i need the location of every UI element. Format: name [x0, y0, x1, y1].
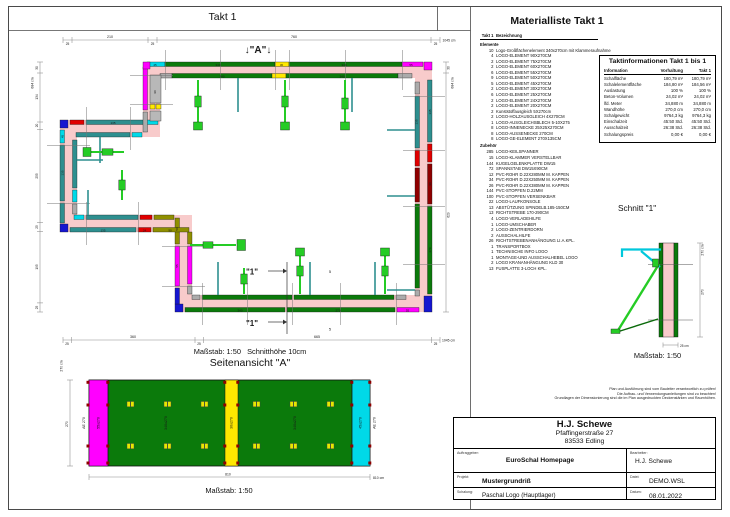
datum-label: Datum:: [630, 490, 642, 494]
dim-label: 25: [434, 342, 438, 346]
svg-text:90: 90: [168, 228, 172, 232]
cell-auftraggeber: Auftraggeber: EuroSchal Homepage: [454, 449, 627, 472]
braces: [83, 80, 390, 294]
svg-text:AE 270: AE 270: [373, 417, 377, 429]
dim-label: 20: [35, 124, 39, 128]
projekt-value: Mustergrundriß: [482, 478, 626, 485]
material-group-accessories: Zubehör: [480, 143, 666, 149]
title-block: H.J. Schewe Pfaffingerstraße 27 83533 Ed…: [453, 417, 716, 500]
info-key: Schalungspreis: [604, 132, 649, 138]
svg-text:340x270: 340x270: [164, 416, 168, 430]
cell-datum: Datum: 08.01.2022: [627, 488, 715, 499]
svg-text:340: 340: [339, 74, 344, 78]
dim-label: 665: [314, 335, 320, 339]
info-takt-value: 0,00 €: [683, 132, 711, 138]
plan-scale-note: Maßstab: 1:50 Schnitthöhe 10cm: [130, 347, 370, 356]
elevation-scale-label: Maßstab: 1:50: [154, 486, 304, 495]
auftraggeber-label: Auftraggeber:: [457, 451, 479, 455]
dim-label: 30: [35, 66, 39, 70]
material-qty: 13: [480, 266, 496, 272]
dim-label: 210: [107, 35, 113, 39]
dim-label: 25: [197, 342, 201, 346]
floor-plan: "1" "1" 5 5 ↓"A"↓ 25 210 25 760 25 1045 …: [31, 35, 456, 346]
col-vorhaltung: Vorhaltung: [649, 68, 683, 74]
material-name: FUSPLATTE 3-LOCH KPL.: [496, 266, 666, 272]
company-city: 83533 Edling: [454, 438, 715, 446]
svg-text:AE 270: AE 270: [82, 417, 86, 429]
svg-text:340: 340: [219, 74, 224, 78]
view-a-marker: ↓"A"↓: [245, 45, 272, 56]
svg-text:135: 135: [110, 121, 115, 125]
dim-label: 684 cm: [451, 77, 455, 88]
cell-schalung: Schalung: Paschal Logo (Hauptlager): [454, 488, 627, 499]
datei-value: DEMO.WSL: [649, 478, 715, 485]
svg-text:55: 55: [409, 63, 413, 67]
disclaimer-line: Grundlagen der Dimensionierung sind die …: [440, 396, 716, 401]
svg-text:135: 135: [428, 109, 432, 114]
takt-info-title: Taktinformationen Takt 1 bis 1: [604, 58, 711, 65]
svg-text:810: 810: [225, 473, 231, 477]
plan-scale-label: Maßstab: 1:50: [194, 347, 241, 356]
schalung-value: Paschal Logo (Hauptlager): [482, 492, 626, 499]
svg-text:24: 24: [143, 228, 147, 232]
title-block-row-project: Projekt: Mustergrundriß Datei: DEMO.WSL: [454, 472, 715, 487]
svg-text:135: 135: [61, 170, 65, 175]
datei-label: Datei:: [630, 475, 639, 479]
svg-text:25 cm: 25 cm: [680, 344, 689, 348]
material-col-takt: Takt 1: [480, 33, 496, 39]
takt-strip-title: Takt 1: [8, 11, 437, 23]
svg-text:340: 340: [341, 63, 346, 67]
dim-label: 25: [35, 225, 39, 229]
col-information: Information: [604, 68, 649, 74]
material-col-name: Bezeichnung: [496, 33, 598, 39]
material-list-header: Takt 1 Bezeichnung: [480, 33, 598, 40]
datum-value: 08.01.2022: [649, 493, 715, 500]
svg-text:45: 45: [153, 63, 157, 67]
walkway-consoles: [77, 78, 415, 295]
takt-info-row: Schalungspreis 0,00 € 0,00 €: [604, 132, 711, 138]
takt-info-panel: Taktinformationen Takt 1 bis 1 Informati…: [599, 55, 716, 143]
dim-label: 629: [447, 212, 451, 218]
corner-outer: [143, 62, 150, 69]
svg-text:55x270: 55x270: [97, 417, 101, 429]
svg-text:55: 55: [406, 308, 410, 312]
brace-dim-label: 5: [329, 327, 332, 332]
svg-text:45x270: 45x270: [359, 417, 363, 429]
section-scale-label: Maßstab: 1:50: [610, 351, 705, 360]
dim-label: 684 cm: [31, 77, 35, 88]
company-street: Pfaffingerstraße 27: [454, 430, 715, 438]
info-vorhaltung-value: 0,00 €: [649, 132, 683, 138]
title-block-row-client: Auftraggeber: EuroSchal Homepage Bearbei…: [454, 449, 715, 472]
material-row: 13 FUSPLATTE 3-LOCH KPL.: [480, 266, 666, 272]
dim-label: 25: [151, 42, 155, 46]
section-marker-label: "1": [246, 268, 258, 277]
svg-text:45: 45: [61, 135, 65, 139]
push-pull-prop: [617, 264, 659, 332]
material-qty: 8: [480, 136, 496, 142]
svg-text:90: 90: [153, 90, 157, 94]
dim-label: 134: [35, 94, 39, 100]
dim-label: 195: [35, 264, 39, 270]
dim-label: 25: [66, 42, 70, 46]
elevation-title: Seitenansicht "A": [130, 357, 370, 369]
svg-text:135: 135: [100, 228, 105, 232]
svg-text:135: 135: [415, 119, 419, 124]
svg-text:30: 30: [280, 63, 284, 67]
takt-info-header: Information Vorhaltung Takt 1: [604, 68, 711, 75]
bearbeiter-label: Bearbeiter:: [630, 451, 648, 455]
svg-text:270 cm: 270 cm: [60, 360, 64, 371]
dim-label: 1045 cm: [442, 339, 455, 343]
svg-text:270: 270: [65, 421, 69, 427]
disclaimer-notes: Plan und Ausführung sind vom Bauleiter v…: [440, 387, 716, 401]
cell-bearbeiter: Bearbeiter: H.J. Schewe: [627, 449, 715, 472]
dim-label: 1045 cm: [443, 38, 456, 42]
svg-text:270: 270: [335, 308, 340, 312]
dim-label: 25: [434, 42, 438, 46]
svg-text:340: 340: [237, 308, 242, 312]
bearbeiter-value: H.J. Schewe: [635, 458, 715, 465]
section-marker-label: "1": [246, 319, 258, 328]
company-name: H.J. Schewe: [454, 419, 715, 430]
svg-text:810 cm: 810 cm: [373, 476, 384, 480]
svg-text:270 cm: 270 cm: [701, 244, 705, 255]
svg-text:90: 90: [428, 182, 432, 186]
plan-cut-height-label: Schnitthöhe 10cm: [247, 347, 306, 356]
dim-label: 25: [35, 306, 39, 310]
svg-text:340: 340: [215, 63, 220, 67]
dim-label: 25: [65, 342, 69, 346]
takt-info-rows: Schalfläche 180,79 m² 180,79 m² Schalele…: [604, 76, 711, 138]
material-list-title: Materialliste Takt 1: [482, 15, 632, 27]
cell-projekt: Projekt: Mustergrundriß: [454, 473, 627, 487]
auftraggeber-value: EuroSchal Homepage: [454, 457, 626, 464]
title-block-company: H.J. Schewe Pfaffingerstraße 27 83533 Ed…: [454, 418, 715, 449]
dim-label: 760: [291, 35, 297, 39]
dim-label: 360: [130, 335, 136, 339]
svg-text:270: 270: [701, 289, 705, 295]
title-block-row-formwork: Schalung: Paschal Logo (Hauptlager) Datu…: [454, 487, 715, 499]
schalung-label: Schalung:: [457, 490, 473, 494]
brace-dim-label: 5: [329, 269, 332, 274]
dim-label: 30: [447, 66, 451, 70]
svg-text:30x270: 30x270: [230, 417, 234, 429]
svg-text:55: 55: [175, 264, 179, 268]
svg-text:50: 50: [175, 227, 179, 231]
projekt-label: Projekt:: [457, 475, 469, 479]
dim-label: 255: [35, 173, 39, 179]
section-title: Schnitt "1": [618, 203, 704, 213]
svg-text:270: 270: [428, 247, 432, 252]
elevation-view: AE 270 55x270 340x270 30x270 340x270 45x…: [60, 360, 385, 480]
svg-text:340x270: 340x270: [293, 416, 297, 430]
col-takt: Takt 1: [683, 68, 711, 74]
material-group-elements: Elemente: [480, 42, 666, 48]
cell-datei: Datei: DEMO.WSL: [627, 473, 715, 487]
plan-sheet: "1" "1" 5 5 ↓"A"↓ 25 210 25 760 25 1045 …: [0, 0, 730, 517]
